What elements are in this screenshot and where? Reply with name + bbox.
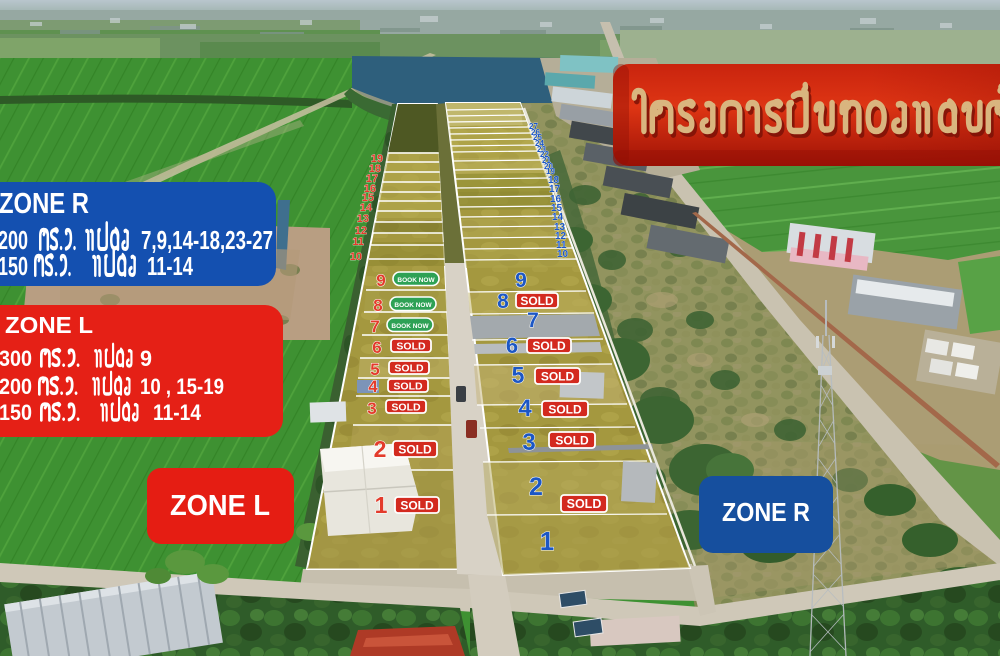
svg-text:8: 8 [497,290,509,313]
svg-text:SOLD: SOLD [400,499,434,513]
svg-text:13: 13 [357,213,369,225]
svg-text:4: 4 [518,395,532,422]
svg-text:11-14: 11-14 [147,251,193,281]
svg-text:2: 2 [374,436,387,462]
svg-text:6: 6 [506,333,518,358]
svg-text:1: 1 [540,526,554,556]
svg-text:ZONE R: ZONE R [722,497,810,527]
svg-text:3: 3 [522,429,535,456]
svg-text:SOLD: SOLD [548,403,582,417]
svg-text:6: 6 [372,338,381,357]
svg-text:BOOK NOW: BOOK NOW [394,302,432,309]
svg-text:150: 150 [0,400,32,425]
svg-text:2: 2 [529,473,543,501]
svg-text:BOOK NOW: BOOK NOW [397,277,435,284]
svg-text:ZONE L: ZONE L [5,312,93,338]
svg-text:ZONE L: ZONE L [170,490,270,522]
svg-text:1: 1 [375,492,388,518]
svg-text:SOLD: SOLD [394,363,424,375]
svg-text:9: 9 [376,271,385,290]
svg-text:7: 7 [527,309,539,332]
svg-text:10 , 15-19: 10 , 15-19 [140,374,224,399]
svg-text:SOLD: SOLD [555,434,589,448]
svg-text:SOLD: SOLD [532,339,566,353]
svg-text:SOLD: SOLD [520,294,554,308]
svg-text:11: 11 [352,236,364,248]
svg-text:10: 10 [350,251,362,263]
svg-text:SOLD: SOLD [567,497,602,511]
svg-text:SOLD: SOLD [541,370,575,384]
svg-text:SOLD: SOLD [396,341,426,353]
svg-text:ZONE R: ZONE R [0,188,89,220]
svg-text:SOLD: SOLD [393,381,423,393]
svg-text:BOOK NOW: BOOK NOW [391,323,429,330]
svg-text:5: 5 [512,362,525,388]
svg-text:SOLD: SOLD [398,443,432,457]
svg-text:300: 300 [0,346,32,371]
svg-text:SOLD: SOLD [391,402,421,414]
svg-text:11-14: 11-14 [153,400,202,425]
svg-text:7: 7 [370,317,379,336]
svg-text:8: 8 [373,296,382,315]
svg-text:3: 3 [367,399,376,418]
svg-text:9: 9 [515,269,527,292]
svg-text:4: 4 [368,377,378,396]
svg-text:10: 10 [557,249,569,260]
svg-text:9: 9 [140,346,152,371]
svg-text:200: 200 [0,374,32,399]
svg-text:150: 150 [0,251,28,281]
